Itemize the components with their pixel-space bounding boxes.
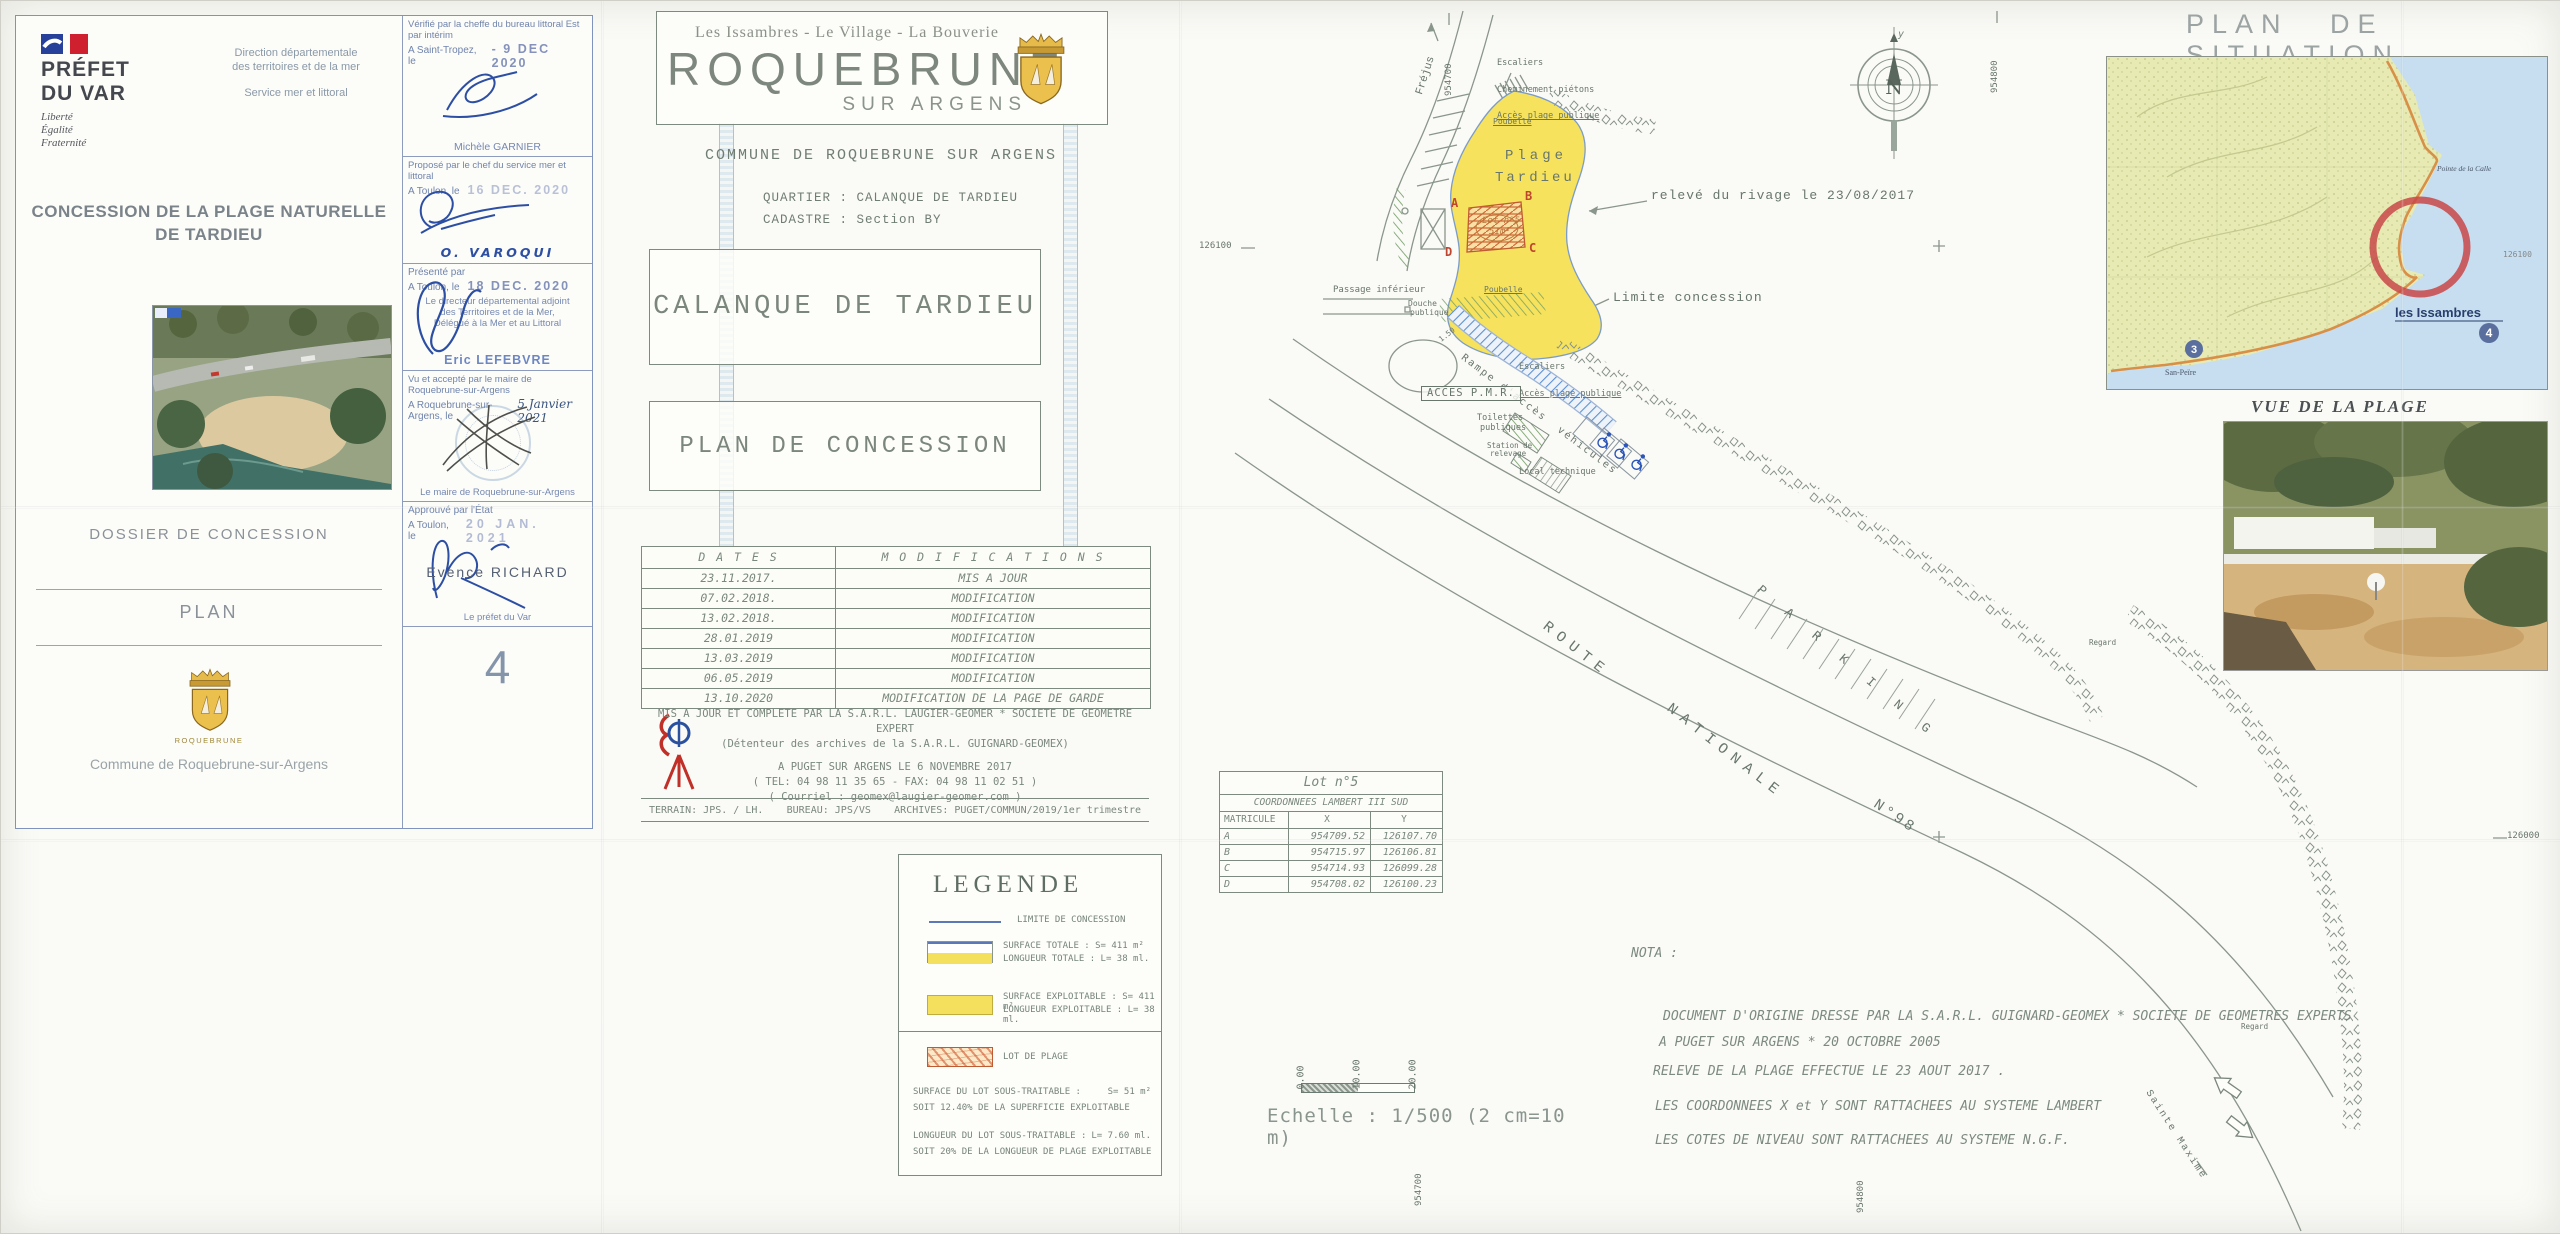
dossier-label: DOSSIER DE CONCESSION [16, 526, 402, 543]
signature [433, 60, 563, 122]
coordinates-title: Lot n°5 [1220, 772, 1442, 794]
cover-left-column: PRÉFET DU VAR Liberté Égalité Fraternité… [16, 16, 403, 828]
nota-line: RELEVE DE LA PLAGE EFFECTUE LE 23 AOUT 2… [1653, 1064, 2352, 1079]
label-point-a: A [1451, 197, 1458, 210]
main-title: CALANQUE DE TARDIEU [653, 292, 1037, 322]
nota-line: LES COORDONNEES X et Y SONT RATTACHEES A… [1655, 1099, 2352, 1114]
legend-label: SOIT 12.40% DE LA SUPERFICIE EXPLOITABLE [913, 1103, 1130, 1113]
table-row: 06.05.2019MODIFICATION [642, 668, 1150, 688]
label-line: Escaliers [1519, 363, 1621, 372]
legend-divider [899, 1031, 1161, 1032]
stamp-signatory: O. VAROQUI [403, 245, 592, 260]
plan-label: PLAN [16, 602, 402, 623]
nota-block: NOTA : DOCUMENT D'ORIGINE DRESSE PAR LA … [1631, 946, 2352, 1148]
cell: 954715.97 [1289, 845, 1371, 860]
legend-label: SURFACE DU LOT SOUS-TRAITABLE : [913, 1087, 1081, 1097]
cell: MODIFICATION [836, 629, 1150, 648]
legend-box: LEGENDE LIMITE DE CONCESSION SURFACE TOT… [898, 854, 1162, 1176]
map-badge-3-number: 3 [2191, 344, 2197, 356]
coordinates-subtitle: COORDONNEES LAMBERT III SUD [1220, 794, 1442, 811]
surveyor-line: A PUGET SUR ARGENS LE 6 NOVEMBRE 2017 [641, 760, 1149, 775]
cell: D [1220, 877, 1289, 892]
cell: MIS A JOUR [836, 569, 1150, 588]
label-plage: Plage [1505, 149, 1567, 164]
cover-title-line: DE TARDIEU [16, 223, 402, 246]
table-row: 28.01.2019MODIFICATION [642, 628, 1150, 648]
footer-terrain: TERRAIN: JPS. / LH. [649, 805, 763, 816]
fold-band [1063, 123, 1078, 547]
nota-line: A PUGET SUR ARGENS * 20 OCTOBRE 2005 [1659, 1035, 2352, 1050]
legend-label: LONGUEUR EXPLOITABLE : L= 38 ml. [1003, 1005, 1161, 1025]
stamp-text: Vérifié par la cheffe du bureau littoral… [408, 19, 587, 41]
cell: 126106.81 [1371, 845, 1442, 860]
stamp-presente: Présenté par A Toulon, le 18 DEC. 2020 L… [403, 264, 592, 371]
compass-rose: N y [1850, 27, 1938, 159]
legend-swatch-limite [929, 921, 1001, 923]
arms-caption: ROQUEBRUNE [16, 736, 402, 745]
legend-line: SURFACE DU LOT SOUS-TRAITABLE : S= 51 m² [909, 1087, 1155, 1097]
prefet-name: PRÉFET [41, 58, 130, 82]
cell: 126099.28 [1371, 861, 1442, 876]
map-coord-126100: 126100 [2503, 250, 2532, 259]
label-point-d: D [1445, 246, 1452, 259]
cell: 07.02.2018. [642, 589, 836, 608]
prefet-name: DU VAR [41, 82, 126, 106]
label-poubelle: Poubelle [1493, 118, 1532, 126]
surveyor-line: ( TEL: 04 98 11 35 65 - FAX: 04 98 11 02… [641, 775, 1149, 790]
scale-tick: 10.00 [1353, 1059, 1364, 1089]
service-line: Service mer et littoral [196, 86, 396, 100]
stamp-propose: Proposé par le chef du service mer et li… [403, 157, 592, 264]
grid-label-126000: 126000 [2507, 832, 2540, 841]
legend-label-limite: LIMITE DE CONCESSION [1017, 915, 1125, 925]
label-line: Cheminement piétons [1497, 86, 1599, 95]
label-line: Accès plage publique [1519, 390, 1621, 399]
swatch-top [928, 942, 992, 953]
map-label-les-issambres: les Issambres [2395, 305, 2481, 320]
cell: MODIFICATION [836, 649, 1150, 668]
legend-label: SURFACE TOTALE : S= 411 m² [1003, 941, 1144, 951]
stamp-text: Vu et accepté par le maire de Roquebrune… [408, 374, 587, 396]
label-local-technique: Local technique [1519, 468, 1596, 477]
table-row: 13.10.2020MODIFICATION DE LA PAGE DE GAR… [642, 688, 1150, 708]
table-row: A954709.52126107.70 [1220, 828, 1442, 844]
coat-of-arms-icon [1009, 26, 1073, 110]
map-label-san-peire: San-Peïre [2165, 368, 2197, 377]
legend-label: LONGUEUR DU LOT SOUS-TRAITABLE : [913, 1131, 1086, 1141]
aerial-photo [152, 305, 392, 490]
banner-sur-argens: SUR ARGENS [667, 94, 1027, 116]
frejus-arrowhead [1427, 23, 1435, 32]
surveyor-block: MIS A JOUR ET COMPLETE PAR LA S.A.R.L. L… [641, 707, 1149, 805]
table-row: 13.02.2018.MODIFICATION [642, 608, 1150, 628]
grid-label-954800: 954800 [1857, 1180, 1866, 1213]
cover-cartouche: PRÉFET DU VAR Liberté Égalité Fraternité… [15, 15, 593, 829]
cell: B [1220, 845, 1289, 860]
label-poubelle: Poubelle [1484, 286, 1523, 294]
cell: MODIFICATION DE LA PAGE DE GARDE [836, 689, 1150, 708]
cell: MODIFICATION [836, 669, 1150, 688]
divider [36, 589, 382, 590]
situation-map: les Issambres Pointe de la Calle 126100 … [2106, 56, 2548, 390]
label-lot-n5: Lot n°5 [1482, 217, 1520, 226]
green-wall-band [1398, 189, 1407, 267]
coordinates-table: Lot n°5 COORDONNEES LAMBERT III SUD MATR… [1219, 771, 1443, 893]
legend-line: LONGUEUR DU LOT SOUS-TRAITABLE : L= 7.60… [909, 1131, 1155, 1141]
stamp-signatory: Michèle GARNIER [403, 141, 592, 153]
grid-label-126100: 126100 [1199, 242, 1232, 251]
surveyor-line: MIS A JOUR ET COMPLETE PAR LA S.A.R.L. L… [641, 707, 1149, 737]
signature-pencil [427, 399, 547, 479]
swatch-bottom [928, 953, 992, 964]
label-acces-pmr: ACCES P.M.R. [1421, 386, 1521, 401]
cell: MODIFICATION [836, 609, 1150, 628]
col-header-dates: D A T E S [642, 547, 836, 568]
label-douche: publique [1410, 309, 1449, 317]
label-regard: Regard [2089, 639, 2116, 647]
modifications-table: D A T E S M O D I F I C A T I O N S 23.1… [641, 546, 1151, 709]
label-toilettes: publiques [1480, 424, 1526, 433]
surveyor-line: (Détenteur des archives de la S.A.R.L. G… [641, 737, 1149, 752]
leader-arrowhead [1589, 206, 1598, 215]
cell: C [1220, 861, 1289, 876]
table-row: 07.02.2018.MODIFICATION [642, 588, 1150, 608]
stamp-text: Proposé par le chef du service mer et li… [408, 160, 587, 182]
commune-caption: Commune de Roquebrune-sur-Argens [16, 756, 402, 772]
direction-line: Direction départementale [196, 46, 396, 60]
sheet-number-cell: 4 [403, 627, 592, 828]
table-row: B954715.97126106.81 [1220, 844, 1442, 860]
grid-label-954700: 954700 [1415, 1173, 1424, 1206]
motto-line: Liberté [41, 111, 86, 124]
scale-caption: Echelle : 1/500 (2 cm=10 m) [1267, 1105, 1567, 1149]
subtitle-box: PLAN DE CONCESSION [649, 401, 1041, 491]
label-releve-rivage: relevé du rivage le 23/08/2017 [1651, 189, 1915, 203]
table-row: 13.03.2019MODIFICATION [642, 648, 1150, 668]
signature [409, 183, 559, 235]
stamp-signatory: Le maire de Roquebrune-sur-Argens [403, 487, 592, 498]
stamp-signatory: Eric LEFEBVRE [403, 353, 592, 367]
cell: 126107.70 [1371, 829, 1442, 844]
legend-swatch-lot [927, 1047, 993, 1067]
label-point-c: C [1529, 242, 1536, 255]
legend-label: LONGUEUR TOTALE : L= 38 ml. [1003, 954, 1149, 964]
legend-label-lot: LOT DE PLAGE [1003, 1052, 1068, 1062]
footer-bureau: BUREAU: JPS/VS [787, 805, 871, 816]
legend-value: S= 51 m² [1108, 1087, 1151, 1097]
signature [405, 274, 495, 360]
label-tardieu: Tardieu [1495, 171, 1575, 186]
col-header-y: Y [1371, 812, 1442, 828]
cadastre-line: CADASTRE : Section BY [763, 213, 942, 227]
cell: 126100.23 [1371, 877, 1442, 892]
scale-tick: 0.00 [1297, 1065, 1308, 1089]
roquebrune-banner: Les Issambres - Le Village - La Bouverie… [656, 11, 1108, 125]
legend-value: L= 7.60 ml. [1091, 1131, 1151, 1141]
label-line: Escaliers [1497, 59, 1599, 68]
divider [36, 645, 382, 646]
motto-line: Égalité [41, 124, 86, 137]
quartier-line: QUARTIER : CALANQUE DE TARDIEU [763, 191, 1018, 205]
motto-line: Fraternité [41, 137, 86, 150]
coat-of-arms-icon [182, 664, 238, 734]
stamp-column: Vérifié par la cheffe du bureau littoral… [403, 16, 592, 828]
label-station-relevage: relevage [1490, 450, 1526, 458]
direction-line: des territoires et de la mer [196, 60, 396, 74]
table-header-row: D A T E S M O D I F I C A T I O N S [642, 547, 1150, 568]
label-lot-area: 51m² [1489, 228, 1511, 237]
beach-photo [2223, 421, 2548, 671]
table-row: 23.11.2017.MIS A JOUR [642, 568, 1150, 588]
cell: 13.03.2019 [642, 649, 836, 668]
footer-archives: ARCHIVES: PUGET/COMMUN/2019/1er trimestr… [894, 805, 1141, 816]
grid-label-954800: 954800 [1991, 60, 2000, 93]
stamp-signatory: Evence RICHARD [403, 564, 592, 580]
nota-line: LES COTES DE NIVEAU SONT RATTACHEES AU S… [1655, 1133, 2352, 1148]
motto: Liberté Égalité Fraternité [41, 111, 86, 150]
cell: 954708.02 [1289, 877, 1371, 892]
stamp-approuve: Approuvé par l'État A Toulon, le 20 JAN.… [403, 502, 592, 627]
legend-swatch-surface-totale [927, 941, 993, 963]
cover-title-line: CONCESSION DE LA PLAGE NATURELLE [16, 200, 402, 223]
stamp-verifie: Vérifié par la cheffe du bureau littoral… [403, 16, 592, 157]
legend-title: LEGENDE [933, 871, 1083, 899]
cell: 13.10.2020 [642, 689, 836, 708]
coordinates-header-row: MATRICULE X Y [1220, 811, 1442, 828]
table-row: C954714.93126099.28 [1220, 860, 1442, 876]
sheet-number: 4 [408, 640, 587, 694]
cell: 954714.93 [1289, 861, 1371, 876]
cell: 28.01.2019 [642, 629, 836, 648]
stamp-text: Approuvé par l'État [408, 505, 587, 516]
map-badge-4-number: 4 [2486, 326, 2493, 340]
grid-label-954700: 954700 [1445, 63, 1454, 96]
legend-label: SOIT 20% DE LA LONGUEUR DE PLAGE EXPLOIT… [913, 1147, 1151, 1157]
compass-north-letter: N [1885, 75, 1903, 99]
commune-line: COMMUNE DE ROQUEBRUNE SUR ARGENS [656, 147, 1106, 164]
label-limite-concession: Limite concession [1613, 291, 1763, 305]
cell: A [1220, 829, 1289, 844]
scale-bar-filled-half [1302, 1084, 1358, 1092]
stamp-role: Le préfet du Var [403, 612, 592, 623]
beach-photo-caption: VUE DE LA PLAGE [2251, 397, 2429, 417]
table-row: D954708.02126100.23 [1220, 876, 1442, 892]
col-header-matricule: MATRICULE [1220, 812, 1289, 828]
drawing-footer-row: TERRAIN: JPS. / LH. BUREAU: JPS/VS ARCHI… [641, 798, 1149, 822]
compass-y-axis-label: y [1897, 29, 1904, 40]
label-toilettes: Toilettes [1477, 414, 1523, 423]
col-header-x: X [1289, 812, 1371, 828]
banner-roquebrune: ROQUEBRUNE [667, 42, 1027, 96]
banner-villages: Les Issambres - Le Village - La Bouverie [667, 24, 1027, 42]
subtitle: PLAN DE CONCESSION [679, 433, 1010, 460]
nota-line: DOCUMENT D'ORIGINE DRESSE PAR LA S.A.R.L… [1663, 1009, 2352, 1024]
direction-block: Direction départementale des territoires… [196, 46, 396, 100]
cell: MODIFICATION [836, 589, 1150, 608]
map-label-pointe: Pointe de la Calle [2436, 164, 2492, 173]
concession-plan-sheet: N y Escaliers Cheminement piétons Accès … [0, 0, 2560, 1234]
stamp-vu-accepte: Vu et accepté par le maire de Roquebrune… [403, 371, 592, 502]
french-republic-logo [41, 33, 93, 55]
cell: 954709.52 [1289, 829, 1371, 844]
label-passage-inferieur: Passage inférieur [1333, 286, 1425, 295]
nota-title: NOTA : [1631, 946, 2352, 961]
cell: 13.02.2018. [642, 609, 836, 628]
scale-tick: 20.00 [1409, 1059, 1420, 1089]
cell: 06.05.2019 [642, 669, 836, 688]
col-header-modifications: M O D I F I C A T I O N S [836, 547, 1150, 568]
main-title-box: CALANQUE DE TARDIEU [649, 249, 1041, 365]
cell: 23.11.2017. [642, 569, 836, 588]
legend-swatch-exploitable [927, 995, 993, 1015]
label-point-b: B [1525, 190, 1532, 203]
cover-title: CONCESSION DE LA PLAGE NATURELLE DE TARD… [16, 200, 402, 246]
